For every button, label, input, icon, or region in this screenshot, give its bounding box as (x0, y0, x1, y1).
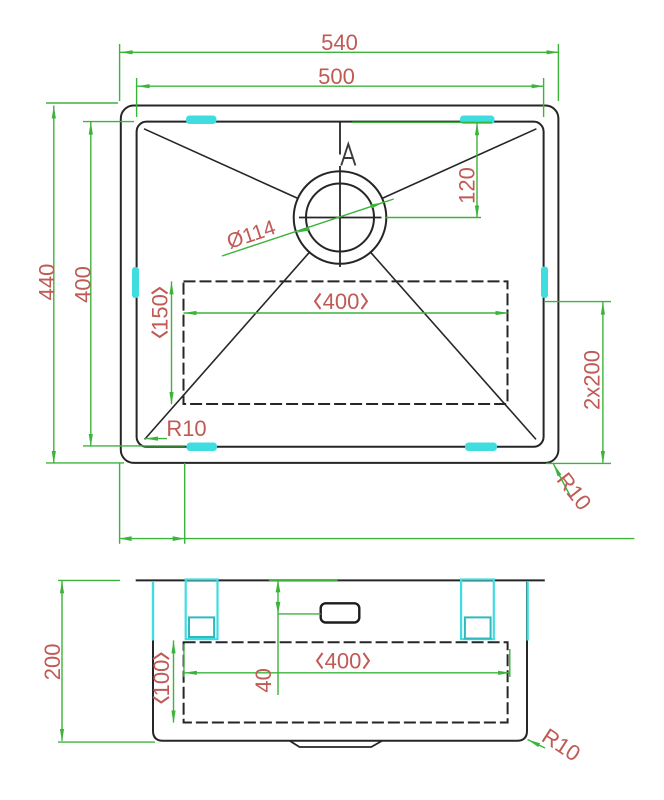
svg-text:2x200: 2x200 (580, 350, 605, 410)
svg-text:200: 200 (40, 644, 65, 681)
svg-text:120: 120 (455, 167, 480, 204)
svg-text:540: 540 (321, 30, 358, 55)
svg-text:400: 400 (323, 289, 360, 314)
svg-text:500: 500 (318, 64, 355, 89)
svg-text:400: 400 (325, 649, 362, 674)
svg-text:440: 440 (35, 264, 60, 301)
svg-text:40: 40 (251, 668, 276, 692)
svg-text:R10: R10 (166, 416, 206, 441)
svg-text:400: 400 (70, 266, 95, 303)
svg-text:100: 100 (149, 660, 174, 697)
svg-text:150: 150 (148, 294, 173, 331)
